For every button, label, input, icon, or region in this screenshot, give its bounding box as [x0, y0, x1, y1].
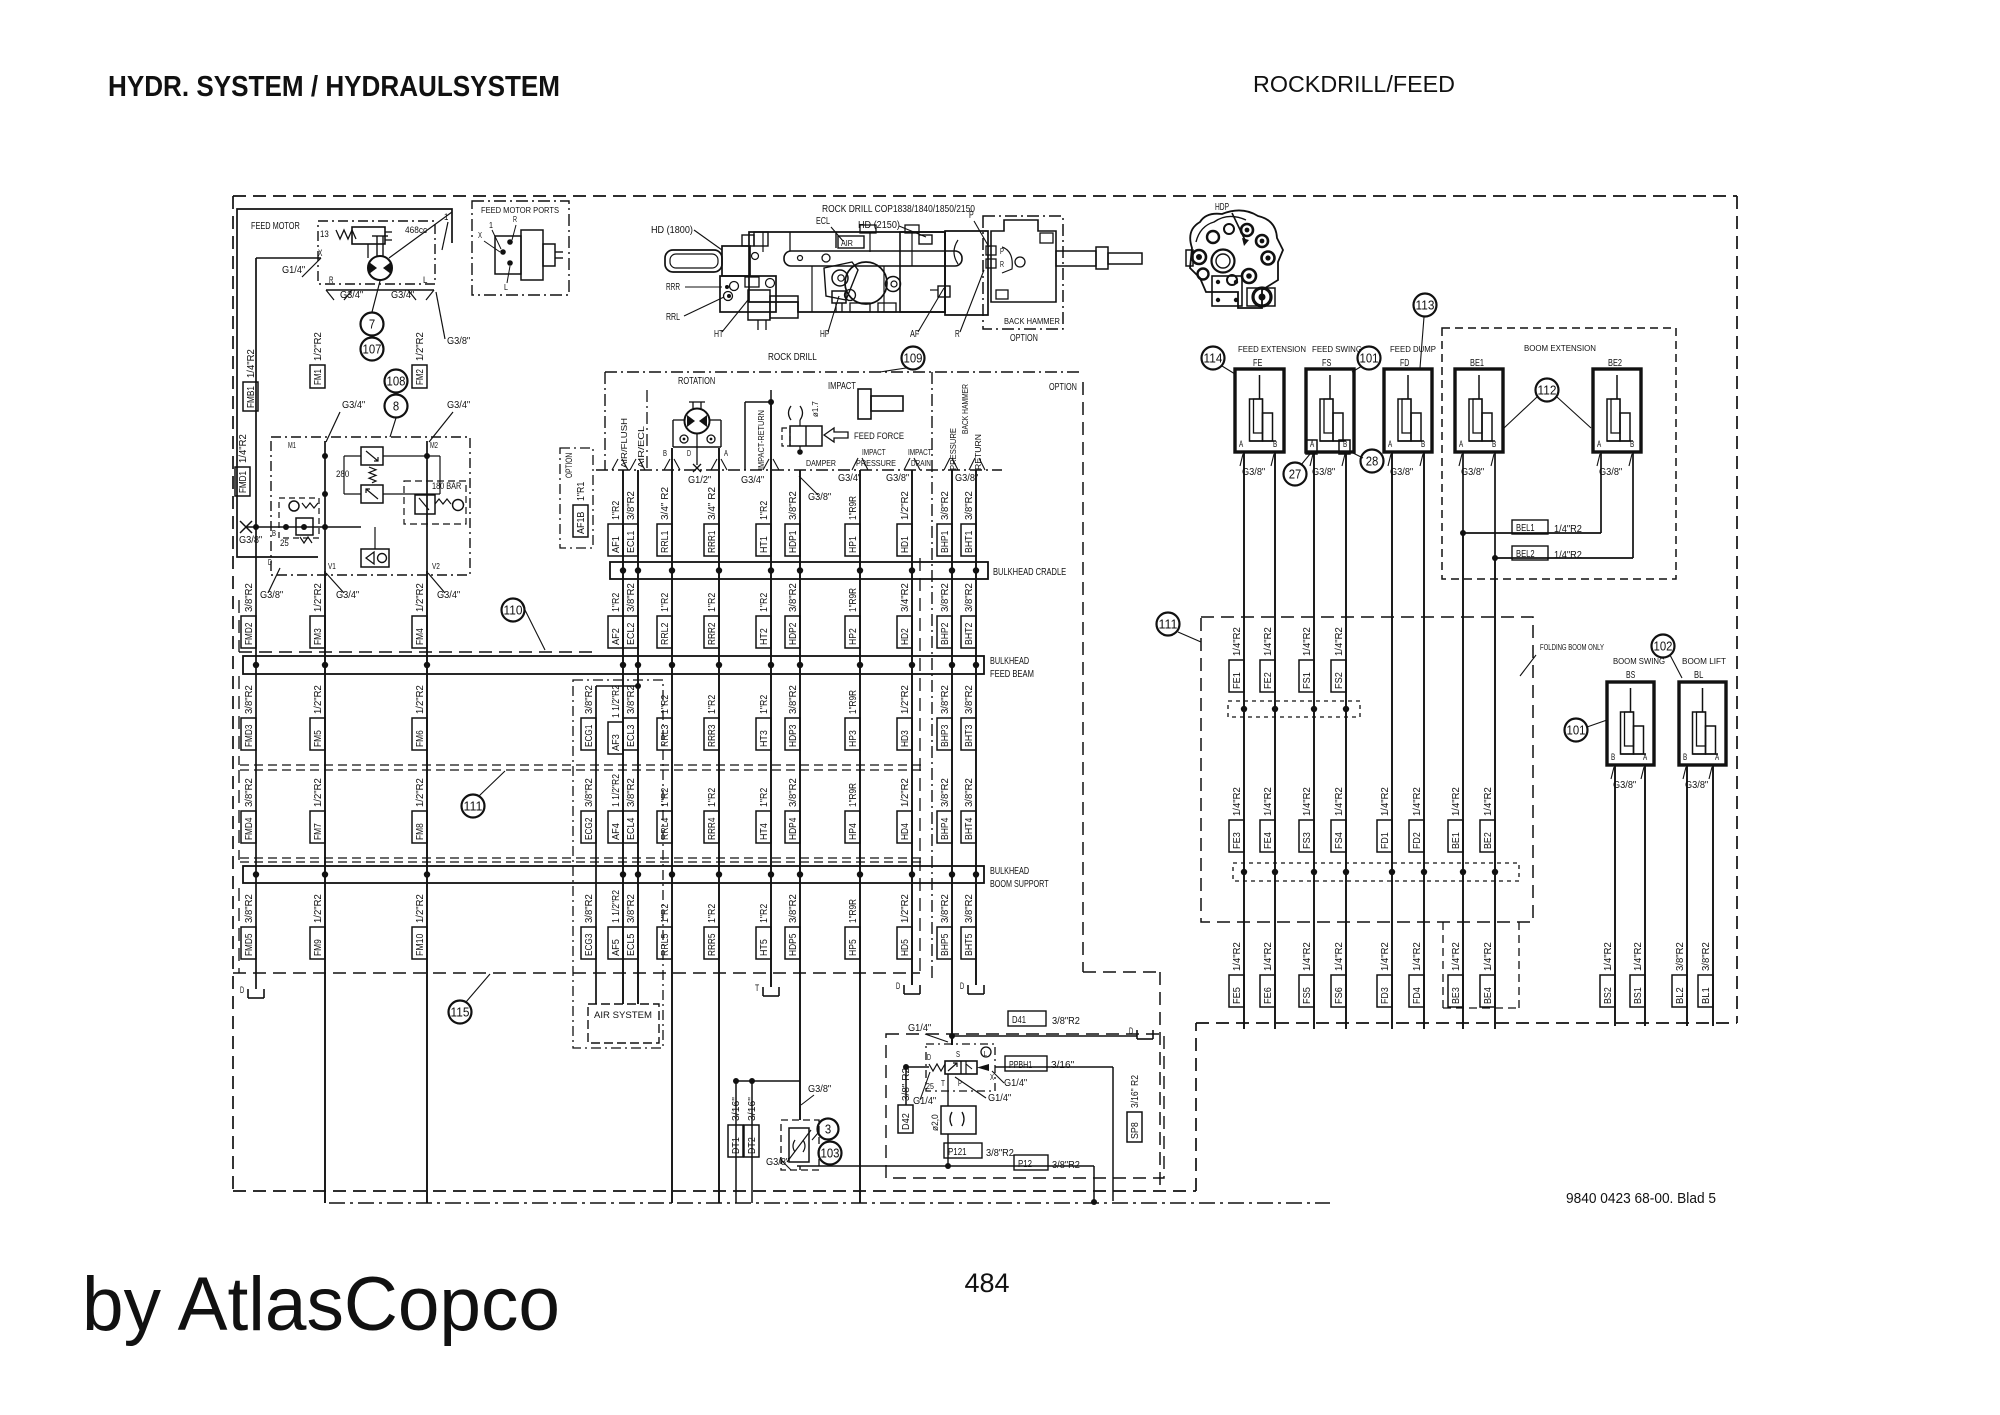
svg-text:BS2: BS2: [1602, 987, 1614, 1004]
svg-text:PRESSURE: PRESSURE: [948, 428, 958, 470]
svg-text:3/8" R2: 3/8" R2: [901, 1068, 912, 1101]
svg-text:27: 27: [1289, 468, 1302, 482]
svg-text:101: 101: [1567, 724, 1586, 738]
svg-text:FM3: FM3: [312, 628, 324, 645]
svg-text:HD5: HD5: [899, 939, 911, 956]
svg-text:RRR3: RRR3: [706, 724, 718, 747]
svg-text:1/4"R2: 1/4"R2: [1232, 942, 1243, 971]
svg-text:113: 113: [1416, 299, 1435, 313]
svg-text:1"R1: 1"R1: [576, 481, 587, 501]
svg-text:1 1/2"R2: 1 1/2"R2: [611, 890, 622, 923]
svg-text:A: A: [724, 448, 728, 458]
svg-text:RRR2: RRR2: [706, 622, 718, 645]
svg-text:G3/8": G3/8": [766, 1157, 790, 1168]
svg-text:A: A: [1597, 439, 1601, 449]
svg-text:FE6: FE6: [1262, 987, 1274, 1004]
svg-text:AF1B: AF1B: [575, 512, 587, 534]
svg-text:3/8"R2: 3/8"R2: [788, 778, 799, 807]
svg-text:A: A: [1239, 439, 1243, 449]
svg-text:AF2: AF2: [610, 628, 622, 645]
svg-text:3/8"R2: 3/8"R2: [1052, 1016, 1080, 1027]
svg-text:103: 103: [821, 1147, 840, 1161]
svg-text:3/4" R2: 3/4" R2: [707, 487, 718, 520]
svg-text:G1/4": G1/4": [1004, 1078, 1028, 1089]
svg-text:BOOM SUPPORT: BOOM SUPPORT: [990, 878, 1049, 890]
svg-text:RRR1: RRR1: [706, 530, 718, 553]
svg-text:BL1: BL1: [1700, 987, 1712, 1004]
svg-text:BHT2: BHT2: [963, 622, 975, 645]
svg-text:BULKHEAD CRADLE: BULKHEAD CRADLE: [993, 566, 1066, 578]
svg-text:1/4"R2: 1/4"R2: [1263, 942, 1274, 971]
svg-text:1/2"R2: 1/2"R2: [313, 583, 324, 612]
svg-text:3/8"R2: 3/8"R2: [964, 894, 975, 923]
svg-text:G3/8": G3/8": [260, 590, 284, 601]
svg-text:T: T: [941, 1078, 945, 1088]
svg-text:FM1: FM1: [312, 369, 324, 385]
svg-text:by AtlasCopco: by AtlasCopco: [82, 1262, 560, 1347]
svg-text:25: 25: [280, 538, 289, 549]
svg-text:BE4: BE4: [1482, 987, 1494, 1004]
svg-text:D: D: [896, 981, 901, 991]
svg-text:IMPACT: IMPACT: [828, 381, 856, 392]
svg-text:BEL2: BEL2: [1516, 549, 1535, 560]
svg-text:A: A: [1459, 439, 1463, 449]
svg-text:HP2: HP2: [847, 628, 859, 645]
svg-text:3/16": 3/16": [731, 1097, 742, 1121]
svg-text:RRR4: RRR4: [706, 817, 718, 840]
svg-text:FM5: FM5: [312, 730, 324, 747]
svg-text:1/4"R2: 1/4"R2: [1263, 627, 1274, 656]
svg-text:FMD2: FMD2: [243, 622, 255, 645]
svg-text:1/4"R2: 1/4"R2: [1554, 524, 1582, 535]
svg-text:3/8"R2: 3/8"R2: [626, 778, 637, 807]
svg-text:1 1/2"R2: 1 1/2"R2: [611, 774, 622, 807]
svg-text:3/8"R2: 3/8"R2: [940, 583, 951, 612]
svg-text:FEED SWING: FEED SWING: [1312, 344, 1362, 354]
svg-text:1/4"R2: 1/4"R2: [1554, 550, 1582, 561]
svg-text:HYDR. SYSTEM / HYDRAULSYSTEM: HYDR. SYSTEM / HYDRAULSYSTEM: [108, 71, 560, 103]
svg-text:1"R2: 1"R2: [759, 694, 770, 714]
svg-text:3/8"R2: 3/8"R2: [940, 491, 951, 520]
svg-text:ECG2: ECG2: [583, 817, 595, 840]
svg-text:1/4"R2: 1/4"R2: [1380, 942, 1391, 971]
svg-text:3/8"R2: 3/8"R2: [244, 583, 255, 612]
svg-text:1"R2: 1"R2: [660, 787, 671, 807]
svg-text:FM9: FM9: [312, 939, 324, 956]
svg-text:3/16": 3/16": [747, 1097, 758, 1121]
svg-text:3/8"R2: 3/8"R2: [964, 685, 975, 714]
svg-text:HD4: HD4: [899, 823, 911, 840]
svg-text:FS5: FS5: [1301, 987, 1313, 1004]
svg-text:1/4"R2: 1/4"R2: [1263, 787, 1274, 816]
svg-text:FD3: FD3: [1379, 987, 1391, 1004]
svg-text:D: D: [268, 557, 272, 567]
svg-text:FEED MOTOR: FEED MOTOR: [251, 220, 300, 232]
svg-text:1/4"R2: 1/4"R2: [1633, 942, 1644, 971]
svg-text:BEL1: BEL1: [1516, 523, 1535, 534]
svg-text:G3/4": G3/4": [838, 473, 862, 484]
svg-text:1"R2: 1"R2: [660, 694, 671, 714]
svg-text:G3/8": G3/8": [1242, 467, 1266, 478]
svg-text:HT5: HT5: [758, 939, 770, 956]
svg-text:RRR: RRR: [666, 282, 680, 293]
svg-text:BL: BL: [1694, 670, 1704, 681]
svg-text:HD (1800): HD (1800): [651, 225, 693, 236]
svg-text:BHP5: BHP5: [939, 933, 951, 956]
svg-text:1/4"R2: 1/4"R2: [1302, 942, 1313, 971]
svg-text:HDP5: HDP5: [787, 933, 799, 956]
svg-text:1/4"R2: 1/4"R2: [1483, 942, 1494, 971]
svg-text:1/4"R2: 1/4"R2: [1451, 787, 1462, 816]
svg-text:1/2"R2: 1/2"R2: [900, 778, 911, 807]
svg-text:1/4"R2: 1/4"R2: [1334, 627, 1345, 656]
svg-text:ECG3: ECG3: [583, 933, 595, 956]
svg-text:1"R2: 1"R2: [759, 500, 770, 520]
svg-text:B: B: [1421, 439, 1425, 449]
svg-text:DT1: DT1: [730, 1137, 742, 1154]
svg-text:B: B: [1273, 439, 1277, 449]
svg-text:280: 280: [336, 469, 349, 480]
svg-text:V1: V1: [328, 561, 336, 571]
svg-text:1"R9R: 1"R9R: [848, 496, 859, 520]
svg-text:1/4"R2: 1/4"R2: [1232, 787, 1243, 816]
svg-text:B: B: [663, 448, 667, 458]
svg-text:G3/8": G3/8": [808, 1084, 832, 1095]
svg-text:ECL3: ECL3: [625, 724, 637, 747]
svg-text:484: 484: [964, 1268, 1009, 1298]
svg-text:468cc: 468cc: [405, 225, 427, 236]
svg-text:G3/4": G3/4": [447, 400, 471, 411]
svg-text:3/8"R2: 3/8"R2: [964, 583, 975, 612]
svg-text:D: D: [687, 448, 691, 458]
svg-text:3/8"R2: 3/8"R2: [244, 778, 255, 807]
svg-text:1"R2: 1"R2: [759, 787, 770, 807]
svg-text:BHP4: BHP4: [939, 817, 951, 840]
svg-text:P: P: [969, 210, 974, 221]
svg-text:3/8"R2: 3/8"R2: [940, 778, 951, 807]
svg-text:3/8"R2: 3/8"R2: [626, 685, 637, 714]
svg-text:FM10: FM10: [414, 933, 426, 956]
svg-text:BHP1: BHP1: [939, 530, 951, 553]
svg-text:V2: V2: [432, 561, 440, 571]
svg-text:3/8"R2: 3/8"R2: [940, 894, 951, 923]
svg-text:180 BAR: 180 BAR: [432, 481, 462, 491]
svg-text:ROCK DRILL: ROCK DRILL: [768, 351, 817, 363]
svg-text:B: B: [1630, 439, 1634, 449]
svg-text:FS2: FS2: [1333, 672, 1345, 689]
svg-text:RRL1: RRL1: [659, 530, 671, 553]
svg-text:1: 1: [444, 212, 448, 223]
svg-text:X: X: [478, 230, 482, 240]
svg-text:P: P: [1000, 246, 1004, 256]
svg-text:1/4"R2: 1/4"R2: [1412, 942, 1423, 971]
svg-text:BHT1: BHT1: [963, 530, 975, 553]
svg-text:RRL5: RRL5: [659, 933, 671, 956]
svg-text:FS1: FS1: [1301, 672, 1313, 689]
svg-text:9840 0423 68-00. Blad 5: 9840 0423 68-00. Blad 5: [1566, 1191, 1716, 1207]
svg-text:1"R2: 1"R2: [660, 592, 671, 612]
svg-text:PRESSURE: PRESSURE: [856, 458, 896, 468]
svg-text:FE1: FE1: [1231, 672, 1243, 689]
svg-text:A: A: [1715, 752, 1719, 762]
svg-text:G3/4": G3/4": [342, 400, 366, 411]
svg-text:3/4"R2: 3/4"R2: [900, 583, 911, 612]
svg-text:BACK HAMMER: BACK HAMMER: [960, 384, 970, 434]
svg-text:FMD1: FMD1: [237, 471, 249, 493]
svg-text:109: 109: [904, 352, 923, 366]
svg-text:107: 107: [363, 343, 382, 357]
svg-text:FEED DUMP: FEED DUMP: [1390, 344, 1436, 354]
svg-text:L: L: [423, 275, 427, 286]
svg-text:FD4: FD4: [1411, 987, 1423, 1004]
svg-text:HP3: HP3: [847, 730, 859, 747]
svg-text:1/2"R2: 1/2"R2: [900, 685, 911, 714]
svg-text:D42: D42: [900, 1113, 912, 1130]
svg-text:1/2"R2: 1/2"R2: [313, 778, 324, 807]
svg-text:PPBH1: PPBH1: [1009, 1060, 1033, 1071]
svg-text:D: D: [1129, 1026, 1134, 1036]
svg-text:B: B: [1611, 752, 1615, 762]
svg-text:1/2"R2: 1/2"R2: [415, 583, 426, 612]
svg-text:D: D: [927, 1052, 931, 1062]
svg-text:IMPACT-RETURN: IMPACT-RETURN: [756, 410, 766, 470]
svg-text:ø2,0: ø2,0: [930, 1114, 940, 1131]
svg-text:8: 8: [393, 400, 399, 414]
svg-text:3/8"R2: 3/8"R2: [788, 583, 799, 612]
svg-text:G1/4": G1/4": [988, 1093, 1012, 1104]
svg-text:1"R9R: 1"R9R: [848, 588, 859, 612]
svg-text:DAMPER: DAMPER: [806, 458, 836, 468]
svg-text:HD2: HD2: [899, 628, 911, 645]
svg-text:G3/4": G3/4": [336, 590, 360, 601]
svg-text:1/4"R2: 1/4"R2: [1334, 787, 1345, 816]
svg-text:1"R2: 1"R2: [707, 787, 718, 807]
svg-text:X: X: [990, 1072, 994, 1082]
svg-text:3/8"R2: 3/8"R2: [584, 685, 595, 714]
svg-text:HT1: HT1: [758, 536, 770, 553]
svg-text:B: B: [1683, 752, 1687, 762]
svg-text:AIR/ECL: AIR/ECL: [636, 426, 646, 468]
svg-text:BULKHEAD: BULKHEAD: [990, 655, 1029, 667]
svg-text:3/8"R2: 3/8"R2: [788, 894, 799, 923]
svg-text:BULKHEAD: BULKHEAD: [990, 865, 1029, 877]
svg-text:1/2"R2: 1/2"R2: [313, 685, 324, 714]
svg-text:AIR SYSTEM: AIR SYSTEM: [594, 1010, 652, 1021]
svg-text:S: S: [956, 1049, 960, 1059]
svg-text:1"R2: 1"R2: [660, 903, 671, 923]
svg-text:G3/4": G3/4": [741, 475, 765, 486]
svg-text:25: 25: [926, 1081, 934, 1091]
svg-text:1"R2: 1"R2: [611, 500, 622, 520]
svg-text:AF: AF: [910, 329, 919, 340]
svg-text:G3/8": G3/8": [1390, 467, 1414, 478]
svg-text:RRL4: RRL4: [659, 817, 671, 840]
svg-text:FOLDING BOOM ONLY: FOLDING BOOM ONLY: [1540, 642, 1604, 652]
svg-text:110: 110: [504, 604, 523, 618]
svg-text:G1/4": G1/4": [908, 1023, 932, 1034]
svg-text:3/8"R2: 3/8"R2: [788, 491, 799, 520]
svg-text:ROCKDRILL/FEED: ROCKDRILL/FEED: [1253, 71, 1455, 97]
svg-text:G1/4": G1/4": [282, 265, 306, 276]
svg-text:1"R2: 1"R2: [707, 694, 718, 714]
svg-text:G3/8": G3/8": [239, 535, 263, 546]
svg-text:3/8"R2: 3/8"R2: [244, 894, 255, 923]
svg-text:HDP2: HDP2: [787, 622, 799, 645]
svg-text:OPTION: OPTION: [1010, 333, 1038, 344]
svg-text:BOOM EXTENSION: BOOM EXTENSION: [1524, 343, 1596, 353]
svg-text:G3/8": G3/8": [1685, 780, 1709, 791]
svg-text:102: 102: [1654, 640, 1673, 654]
svg-text:FEED MOTOR PORTS: FEED MOTOR PORTS: [481, 205, 559, 215]
svg-text:FE5: FE5: [1231, 987, 1243, 1004]
svg-text:3/8"R2: 3/8"R2: [964, 778, 975, 807]
svg-text:FM8: FM8: [414, 823, 426, 840]
svg-text:1/2"R2: 1/2"R2: [415, 685, 426, 714]
svg-text:DT2: DT2: [746, 1137, 758, 1154]
svg-text:R: R: [955, 329, 960, 340]
svg-text:3/8"R2: 3/8"R2: [584, 894, 595, 923]
svg-text:1/4"R2: 1/4"R2: [1302, 627, 1313, 656]
svg-text:1/2"R2: 1/2"R2: [313, 894, 324, 923]
svg-text:G3/4": G3/4": [340, 290, 364, 301]
svg-text:1/4"R2: 1/4"R2: [1380, 787, 1391, 816]
svg-text:114: 114: [1204, 352, 1223, 366]
svg-text:115: 115: [451, 1006, 470, 1020]
svg-text:1/4"R2: 1/4"R2: [1334, 942, 1345, 971]
svg-text:1/4"R2: 1/4"R2: [1302, 787, 1313, 816]
svg-text:IMPACT: IMPACT: [862, 447, 886, 457]
svg-text:FD2: FD2: [1411, 832, 1423, 849]
svg-text:FD1: FD1: [1379, 832, 1391, 849]
svg-text:ROCK DRILL COP1838/1840/1850/2: ROCK DRILL COP1838/1840/1850/2150: [822, 203, 975, 215]
svg-text:1"R2: 1"R2: [611, 592, 622, 612]
svg-text:112: 112: [1538, 384, 1557, 398]
svg-text:BOOM LIFT: BOOM LIFT: [1682, 656, 1726, 666]
svg-text:1/2"R2: 1/2"R2: [313, 332, 324, 361]
svg-text:HP5: HP5: [847, 939, 859, 956]
svg-text:FMD4: FMD4: [243, 817, 255, 840]
svg-text:HT2: HT2: [758, 628, 770, 645]
svg-text:G3/4": G3/4": [437, 590, 461, 601]
svg-text:FS4: FS4: [1333, 832, 1345, 849]
svg-text:101: 101: [1360, 352, 1379, 366]
svg-text:ECL4: ECL4: [625, 817, 637, 840]
svg-text:L: L: [984, 1049, 988, 1058]
svg-text:G3/8": G3/8": [886, 473, 910, 484]
svg-text:1/4"R2: 1/4"R2: [1451, 942, 1462, 971]
svg-text:P121: P121: [948, 1147, 967, 1158]
svg-text:HT3: HT3: [758, 730, 770, 747]
svg-text:G3/8": G3/8": [808, 492, 832, 503]
svg-text:FM4: FM4: [414, 628, 426, 645]
svg-text:3: 3: [825, 1123, 831, 1137]
svg-text:ROTATION: ROTATION: [678, 376, 715, 387]
svg-text:DRAIN: DRAIN: [911, 458, 931, 468]
svg-text:1"R2: 1"R2: [759, 592, 770, 612]
svg-text:ECL5: ECL5: [625, 933, 637, 956]
svg-text:1"R2: 1"R2: [759, 903, 770, 923]
svg-text:BHT5: BHT5: [963, 933, 975, 956]
svg-text:108: 108: [387, 375, 406, 389]
svg-text:FS6: FS6: [1333, 987, 1345, 1004]
svg-text:1/2"R2: 1/2"R2: [415, 778, 426, 807]
svg-text:FE3: FE3: [1231, 832, 1243, 849]
svg-text:HT4: HT4: [758, 823, 770, 840]
svg-text:R: R: [1000, 259, 1004, 269]
svg-text:BS1: BS1: [1632, 987, 1644, 1004]
svg-text:AF1: AF1: [610, 536, 622, 553]
svg-text:AIR/FLUSH: AIR/FLUSH: [619, 418, 629, 468]
svg-text:IMPACT: IMPACT: [908, 447, 932, 457]
svg-text:P12: P12: [1018, 1159, 1032, 1170]
svg-text:3/8"R2: 3/8"R2: [584, 778, 595, 807]
svg-text:BACK HAMMER: BACK HAMMER: [1004, 316, 1060, 326]
svg-text:B: B: [272, 528, 276, 538]
svg-text:FM6: FM6: [414, 730, 426, 747]
svg-text:FMD3: FMD3: [243, 724, 255, 747]
svg-text:111: 111: [464, 800, 483, 814]
svg-text:1"R9R: 1"R9R: [848, 783, 859, 807]
svg-text:3/8"R2: 3/8"R2: [964, 491, 975, 520]
svg-text:HT: HT: [714, 329, 723, 340]
svg-text:3/8"R2: 3/8"R2: [986, 1148, 1014, 1159]
svg-text:BE1: BE1: [1450, 832, 1462, 849]
svg-text:FS3: FS3: [1301, 832, 1313, 849]
svg-text:R: R: [513, 214, 517, 224]
svg-text:L: L: [504, 282, 508, 292]
svg-text:3/8"R2: 3/8"R2: [940, 685, 951, 714]
svg-text:BE2: BE2: [1482, 832, 1494, 849]
svg-text:FM7: FM7: [312, 823, 324, 840]
svg-text:SP8: SP8: [1129, 1122, 1141, 1139]
svg-text:D: D: [240, 985, 245, 995]
svg-text:BE3: BE3: [1450, 987, 1462, 1004]
svg-text:ø1.7: ø1.7: [810, 401, 820, 417]
svg-text:G1/2": G1/2": [688, 475, 712, 486]
svg-text:RRL3: RRL3: [659, 724, 671, 747]
svg-text:3/8"R2: 3/8"R2: [1701, 942, 1712, 971]
svg-text:3/4" R2: 3/4" R2: [660, 487, 671, 520]
svg-text:A: A: [1388, 439, 1392, 449]
svg-text:FE4: FE4: [1262, 832, 1274, 849]
svg-text:RRL: RRL: [666, 312, 680, 323]
svg-text:G3/8": G3/8": [1599, 467, 1623, 478]
svg-text:FEED EXTENSION: FEED EXTENSION: [1238, 344, 1306, 354]
svg-text:1/4"R2: 1/4"R2: [1232, 627, 1243, 656]
svg-text:OPTION: OPTION: [564, 453, 574, 478]
svg-text:1/4"R2: 1/4"R2: [1412, 787, 1423, 816]
svg-text:HDP1: HDP1: [787, 530, 799, 553]
svg-text:A: A: [1643, 752, 1647, 762]
svg-text:AF4: AF4: [610, 823, 622, 840]
svg-text:3/16" R2: 3/16" R2: [1130, 1075, 1141, 1108]
svg-text:1/4"R2: 1/4"R2: [1483, 787, 1494, 816]
svg-text:1"R9R: 1"R9R: [848, 899, 859, 923]
svg-text:BHP2: BHP2: [939, 622, 951, 645]
svg-text:D41: D41: [1012, 1015, 1026, 1026]
svg-text:M1: M1: [288, 440, 296, 450]
svg-text:FEED FORCE: FEED FORCE: [854, 431, 904, 441]
svg-text:3/16": 3/16": [1051, 1060, 1075, 1071]
svg-text:1"R2: 1"R2: [707, 903, 718, 923]
svg-text:3/8"R2: 3/8"R2: [626, 491, 637, 520]
svg-text:T: T: [755, 983, 760, 993]
svg-text:R: R: [329, 275, 333, 286]
svg-text:1/4"R2: 1/4"R2: [238, 434, 249, 463]
svg-text:G3/8": G3/8": [1613, 780, 1637, 791]
svg-text:BOOM SWING: BOOM SWING: [1613, 656, 1665, 666]
svg-text:BHT3: BHT3: [963, 724, 975, 747]
